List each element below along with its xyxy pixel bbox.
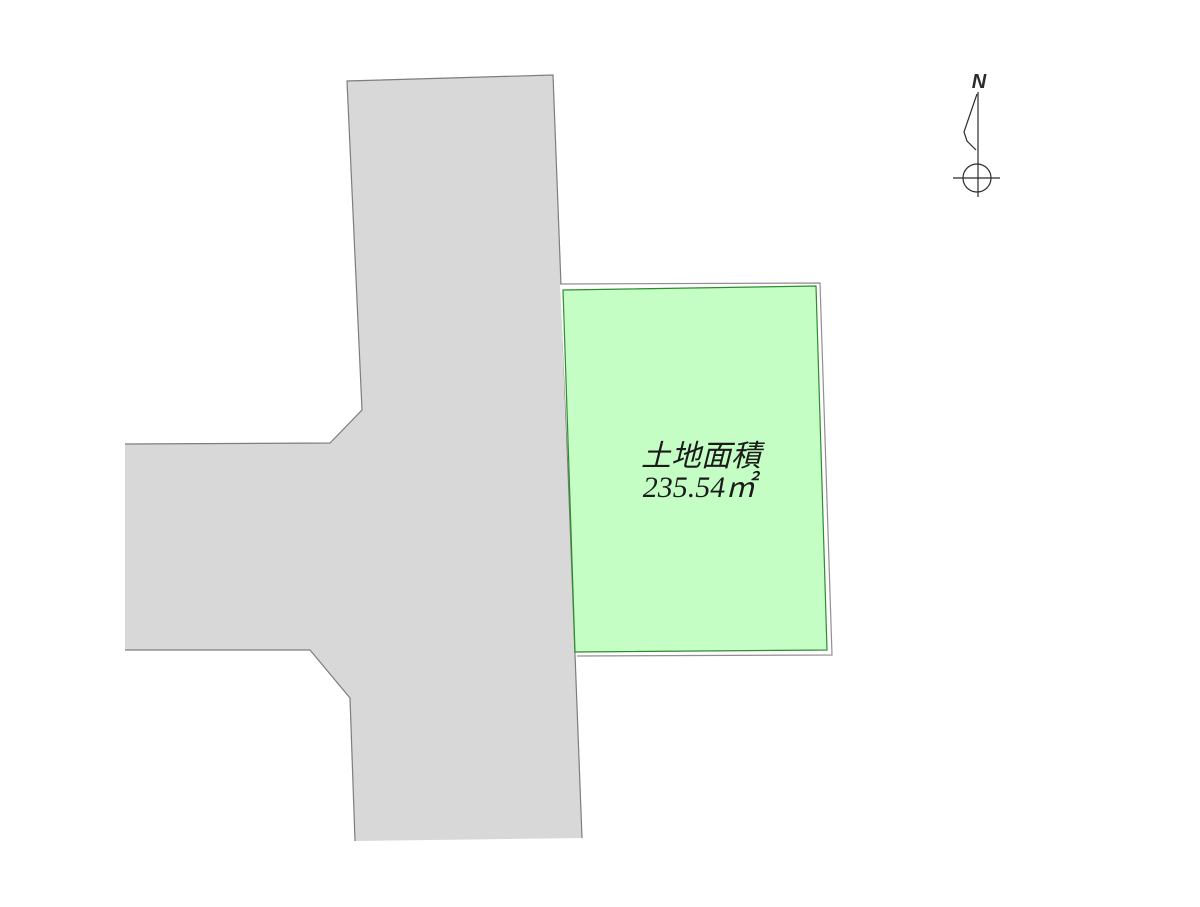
site-plan-page: 土地面積 235.54㎡ N bbox=[0, 0, 1200, 907]
parcel-area-value: 235.54㎡ bbox=[643, 470, 762, 504]
compass-needle bbox=[964, 94, 977, 150]
parcel-area-label: 土地面積 bbox=[641, 440, 765, 473]
site-plan-canvas: 土地面積 235.54㎡ N bbox=[0, 0, 1200, 907]
road-shape bbox=[125, 75, 582, 841]
road-border-lower bbox=[125, 650, 355, 841]
north-label: N bbox=[972, 71, 987, 93]
north-compass: N bbox=[953, 71, 1000, 197]
